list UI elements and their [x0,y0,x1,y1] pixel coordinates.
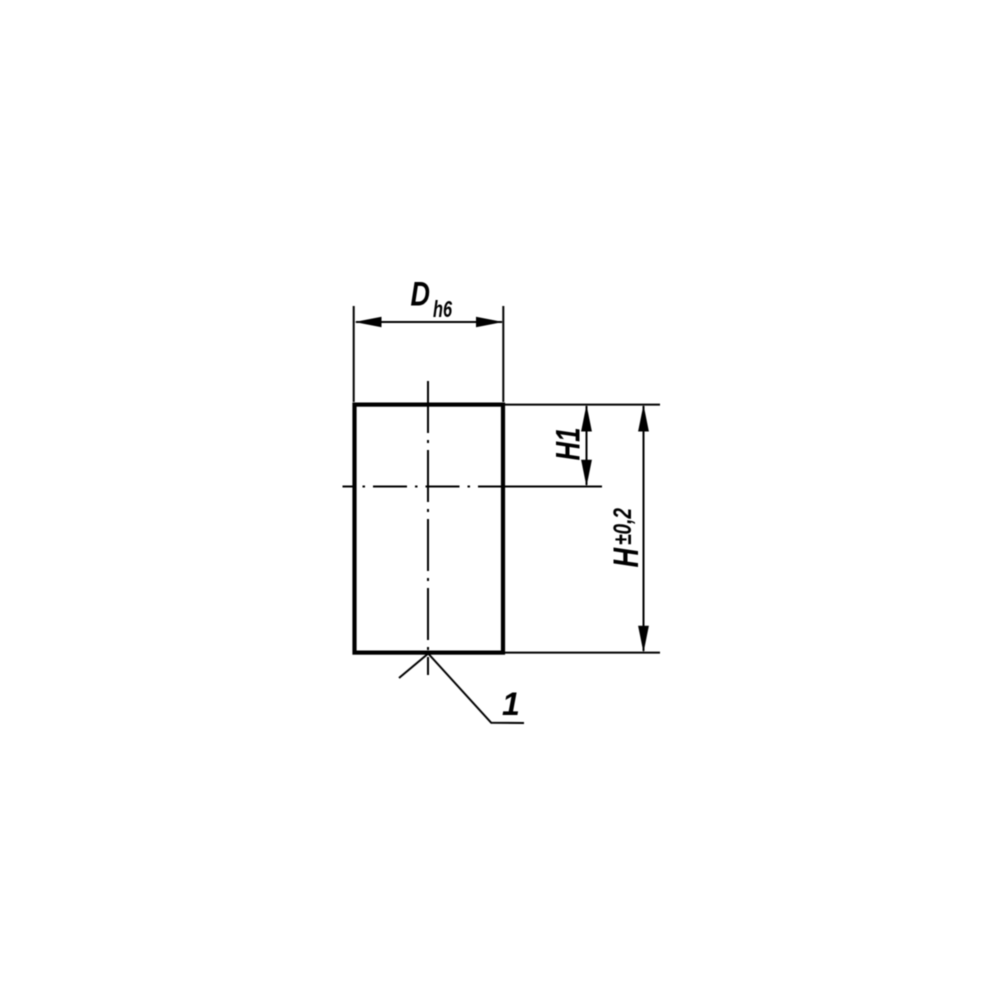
svg-text:±0,2: ±0,2 [609,508,637,545]
svg-text:1: 1 [502,686,520,722]
svg-text:D: D [411,276,431,314]
svg-text:h6: h6 [433,296,452,322]
svg-text:H1: H1 [550,428,588,461]
svg-text:H: H [607,547,646,567]
